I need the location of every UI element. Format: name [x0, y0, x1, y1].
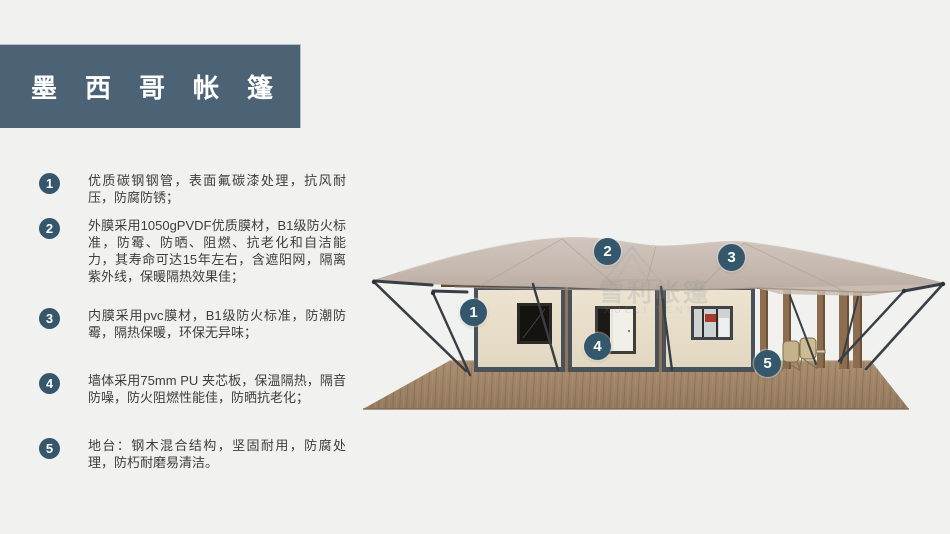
page-title: 墨西哥帐篷 — [0, 68, 301, 105]
feature-item-4: 4 墙体采用75mm PU 夹芯板，保温隔热，隔音防噪，防火阻燃性能佳，防晒抗老… — [39, 372, 347, 406]
title-banner: 墨西哥帐篷 — [0, 44, 301, 128]
slide: { "title": { "text": "墨西哥帐篷" }, "feature… — [0, 0, 950, 534]
callout-marker-2: 2 — [594, 238, 621, 265]
feature-item-1: 1 优质碳钢钢管，表面氟碳漆处理，抗风耐压，防腐防锈； — [39, 172, 347, 206]
feature-text-2: 外膜采用1050gPVDF优质膜材，B1级防火标准，防霉、防晒、阻燃、抗老化和自… — [88, 217, 346, 285]
feature-number-badge-5: 5 — [39, 438, 60, 459]
feature-item-2: 2 外膜采用1050gPVDF优质膜材，B1级防火标准，防霉、防晒、阻燃、抗老化… — [39, 217, 347, 285]
tent-product-image: 雪利帐篷 XUELI TENT — [355, 218, 950, 418]
feature-number-badge-3: 3 — [39, 308, 60, 329]
window-3 — [691, 306, 733, 340]
callout-marker-5: 5 — [754, 350, 781, 377]
watermark-en-text: XUELI TENT — [604, 305, 696, 315]
watermark-cn-text: 雪利帐篷 — [599, 278, 711, 307]
feature-number-badge-1: 1 — [39, 173, 60, 194]
feature-number-badge-4: 4 — [39, 373, 60, 394]
callout-marker-3: 3 — [718, 244, 745, 271]
feature-text-5: 地台：钢木混合结构，坚固耐用，防腐处理，防朽耐磨易清洁。 — [88, 437, 346, 471]
feature-item-3: 3 内膜采用pvc膜材，B1级防火标准，防潮防霉，隔热保暖，环保无异味； — [39, 307, 347, 341]
callout-marker-4: 4 — [584, 333, 611, 360]
feature-text-4: 墙体采用75mm PU 夹芯板，保温隔热，隔音防噪，防火阻燃性能佳，防晒抗老化； — [88, 372, 346, 406]
feature-number-badge-2: 2 — [39, 218, 60, 239]
wall-module-1 — [474, 286, 565, 372]
feature-item-5: 5 地台：钢木混合结构，坚固耐用，防腐处理，防朽耐磨易清洁。 — [39, 437, 347, 471]
callout-marker-1: 1 — [460, 299, 487, 326]
feature-text-3: 内膜采用pvc膜材，B1级防火标准，防潮防霉，隔热保暖，环保无异味； — [88, 307, 346, 341]
feature-text-1: 优质碳钢钢管，表面氟碳漆处理，抗风耐压，防腐防锈； — [88, 172, 346, 206]
